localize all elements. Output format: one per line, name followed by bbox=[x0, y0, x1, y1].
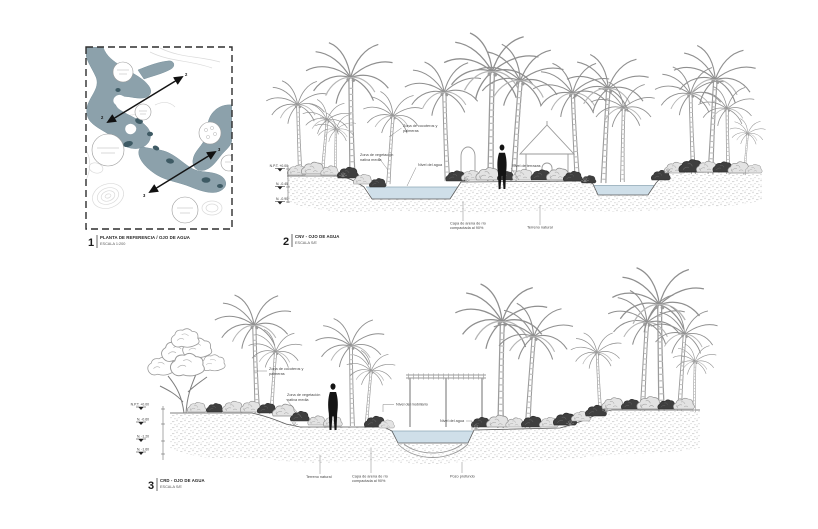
level-label: N.P.T. +0.00 bbox=[270, 164, 288, 168]
drawing-sheet: 2 2 3 3 1 PLANTA DE REFERENCIA / OJO DE … bbox=[0, 0, 818, 529]
shrub bbox=[506, 418, 524, 427]
section3-level-markers: N.P.T. +0.00 N. -0.60 N. -1.20 N. -1.60 bbox=[131, 403, 165, 461]
svg-text:palmeras: palmeras bbox=[269, 372, 285, 376]
annotation-nivel-mobiliario: Nivel del mobiliario bbox=[396, 403, 428, 407]
level-marker-icon bbox=[275, 169, 285, 172]
section-3-drawing: Zona de cocoteros y palmeras Zona de veg… bbox=[131, 265, 719, 483]
shrub bbox=[602, 398, 624, 409]
reference-plan-map: 2 2 3 3 bbox=[86, 47, 237, 229]
note-capa-arena: Capa de arena de río bbox=[352, 475, 388, 479]
shrub bbox=[187, 402, 206, 412]
annotation-nivel-agua: Nivel del agua bbox=[440, 419, 465, 423]
svg-text:nativa media: nativa media bbox=[287, 398, 309, 402]
shrub-dark bbox=[658, 400, 676, 409]
panel1-number: 1 bbox=[88, 237, 94, 249]
annotation-zona-palmeras: Zona de cocoteros y bbox=[269, 367, 304, 371]
annotation-zona-vegetacion: Zona de vegetación bbox=[287, 393, 320, 397]
panel1-scale: ESCALA 1:200 bbox=[100, 242, 125, 246]
palapa-hut bbox=[520, 121, 574, 177]
level-label: N. -1.60 bbox=[137, 448, 149, 452]
svg-text:compactada al 90%: compactada al 90% bbox=[352, 479, 386, 483]
level-label: N. -0.60 bbox=[137, 418, 149, 422]
shrub-dark bbox=[206, 403, 223, 412]
shrub bbox=[272, 404, 295, 416]
shrub bbox=[476, 168, 500, 180]
title-block-2: 2 CNV - OJO DE AGUA ESCALA S/E bbox=[283, 234, 340, 248]
palm-tree bbox=[214, 292, 297, 416]
note-terreno-natural: Terreno natural bbox=[527, 226, 553, 230]
annotation-zona-palmeras: Zona de cocoteros y bbox=[403, 124, 438, 128]
svg-text:nativa media: nativa media bbox=[360, 158, 382, 162]
palm-tree bbox=[305, 41, 396, 180]
level-label: N. -0.45 bbox=[276, 182, 288, 186]
panel2-number: 2 bbox=[283, 236, 289, 248]
palm-tree bbox=[471, 43, 565, 183]
annotation-zona-vegetacion: Zona de vegetación bbox=[360, 153, 393, 157]
svg-text:palmeras: palmeras bbox=[403, 129, 419, 133]
panel3-scale: ESCALA S/E bbox=[160, 485, 182, 489]
section2-level-markers: N.P.T. +0.00 N. -0.45 N. -0.90 bbox=[270, 164, 290, 205]
level-marker-icon bbox=[275, 202, 285, 205]
deciduous-tree bbox=[148, 329, 225, 413]
arched-niche bbox=[461, 147, 475, 174]
level-marker-icon bbox=[275, 187, 285, 190]
level-label: N. -0.90 bbox=[276, 197, 288, 201]
level-marker-icon bbox=[136, 439, 146, 442]
panel3-number: 3 bbox=[148, 480, 154, 492]
note-capa-arena: Capa de arena de río bbox=[450, 222, 486, 226]
level-marker-icon bbox=[136, 452, 146, 455]
panel2-title: CNV - OJO DE AGUA bbox=[295, 234, 340, 239]
title-block-3: 3 CRD - OJO DE AGUA ESCALA S/E bbox=[148, 478, 205, 492]
palm-tree bbox=[670, 45, 756, 176]
panel3-title: CRD - OJO DE AGUA bbox=[160, 478, 205, 483]
shrub-dark bbox=[337, 167, 358, 178]
palm-tree bbox=[360, 91, 423, 186]
palm-tree bbox=[532, 60, 617, 185]
tree-foliage bbox=[171, 329, 199, 347]
sheet-canvas: 2 2 3 3 1 PLANTA DE REFERENCIA / OJO DE … bbox=[0, 0, 818, 529]
shrub bbox=[673, 398, 694, 409]
panel1-title: PLANTA DE REFERENCIA / OJO DE AGUA bbox=[100, 235, 190, 240]
note-pozo-profundo: Pozo profundo bbox=[450, 475, 475, 479]
level-marker-icon bbox=[136, 422, 146, 425]
section-2-drawing: Zona de cocoteros y palmeras Zona de veg… bbox=[265, 33, 766, 230]
note-terreno-natural: Terreno natural bbox=[306, 475, 332, 479]
level-label: N.P.T. +0.00 bbox=[131, 403, 149, 407]
level-marker-icon bbox=[136, 407, 146, 410]
svg-text:compactada al 90%: compactada al 90% bbox=[450, 226, 484, 230]
annotation-nivel-terrazas: Nivel de terrazas bbox=[512, 164, 541, 168]
title-block-1: 1 PLANTA DE REFERENCIA / OJO DE AGUA ESC… bbox=[88, 235, 190, 249]
palm-tree bbox=[265, 78, 331, 177]
shrub-dark bbox=[369, 178, 386, 187]
panel2-scale: ESCALA S/E bbox=[295, 241, 317, 245]
annotation-nivel-agua: Nivel del agua bbox=[418, 163, 443, 167]
level-label: N. -1.20 bbox=[137, 435, 149, 439]
palm-tree bbox=[444, 33, 538, 181]
section3-water bbox=[391, 431, 473, 443]
shrub bbox=[323, 416, 342, 426]
